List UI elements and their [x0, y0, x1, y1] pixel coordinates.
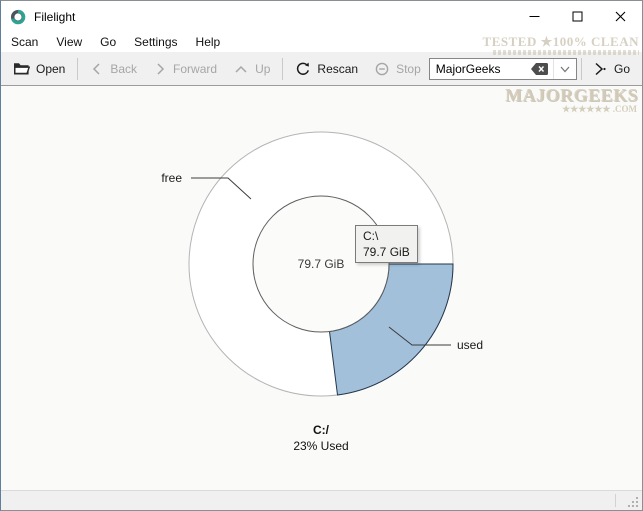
maximize-button[interactable]	[556, 1, 599, 32]
tooltip-path: C:\	[363, 228, 410, 244]
chart-subtitle: 23% Used	[293, 438, 348, 454]
location-combobox[interactable]: MajorGeeks	[429, 58, 577, 80]
open-label: Open	[36, 62, 65, 76]
window-title: Filelight	[34, 10, 75, 24]
menu-view[interactable]: View	[47, 33, 91, 51]
back-button[interactable]: Back	[82, 56, 145, 82]
menu-settings[interactable]: Settings	[125, 33, 186, 51]
chart-caption: C:/ 23% Used	[293, 422, 348, 454]
window-controls	[513, 1, 642, 32]
location-input[interactable]: MajorGeeks	[430, 62, 527, 76]
open-button[interactable]: Open	[5, 56, 73, 82]
title-bar: Filelight	[1, 1, 642, 32]
tooltip: C:\ 79.7 GiB	[355, 225, 418, 263]
forward-label: Forward	[173, 62, 217, 76]
back-label: Back	[110, 62, 137, 76]
maximize-icon	[572, 11, 583, 22]
open-folder-icon	[13, 61, 30, 76]
rescan-icon	[295, 61, 311, 77]
chevron-down-icon	[559, 64, 571, 74]
radial-map-view: 79.7 GiB free used C:\ 79.7 GiB C:/ 23% …	[1, 85, 642, 490]
forward-icon	[153, 62, 167, 76]
back-icon	[90, 62, 104, 76]
resize-grip[interactable]	[627, 496, 640, 509]
up-label: Up	[255, 62, 270, 76]
up-icon	[233, 62, 249, 76]
used-slice-label: used	[457, 338, 483, 352]
chart-total-label: 79.7 GiB	[298, 257, 345, 271]
go-arrow-icon	[592, 61, 608, 77]
rescan-button[interactable]: Rescan	[287, 56, 366, 82]
menu-help[interactable]: Help	[187, 33, 230, 51]
up-button[interactable]: Up	[225, 56, 278, 82]
filelight-app-icon	[10, 9, 26, 25]
go-label: Go	[614, 62, 630, 76]
menu-bar: Scan View Go Settings Help	[1, 32, 642, 52]
forward-button[interactable]: Forward	[145, 56, 225, 82]
tooltip-size: 79.7 GiB	[363, 244, 410, 260]
toolbar-separator	[77, 58, 78, 80]
toolbar: Open Back Forward Up Rescan	[1, 52, 642, 85]
stop-button[interactable]: Stop	[366, 56, 429, 82]
location-dropdown-button[interactable]	[553, 59, 576, 79]
menu-go[interactable]: Go	[91, 33, 125, 51]
clear-backspace-icon	[530, 62, 549, 76]
minimize-button[interactable]	[513, 1, 556, 32]
free-slice-label: free	[161, 171, 182, 185]
toolbar-separator	[282, 58, 283, 80]
stop-label: Stop	[396, 62, 421, 76]
status-bar	[1, 490, 642, 511]
filelight-window: Filelight Scan View Go Settings Help O	[0, 0, 643, 511]
chart-title: C:/	[293, 422, 348, 438]
close-icon	[615, 11, 626, 22]
rescan-label: Rescan	[317, 62, 358, 76]
go-button[interactable]: Go	[590, 56, 632, 82]
menu-scan[interactable]: Scan	[2, 33, 47, 51]
stop-icon	[374, 61, 390, 77]
minimize-icon	[529, 11, 540, 22]
statusbar-separator	[615, 494, 616, 507]
close-button[interactable]	[599, 1, 642, 32]
clear-text-button[interactable]	[527, 59, 553, 79]
toolbar-separator	[581, 58, 582, 80]
